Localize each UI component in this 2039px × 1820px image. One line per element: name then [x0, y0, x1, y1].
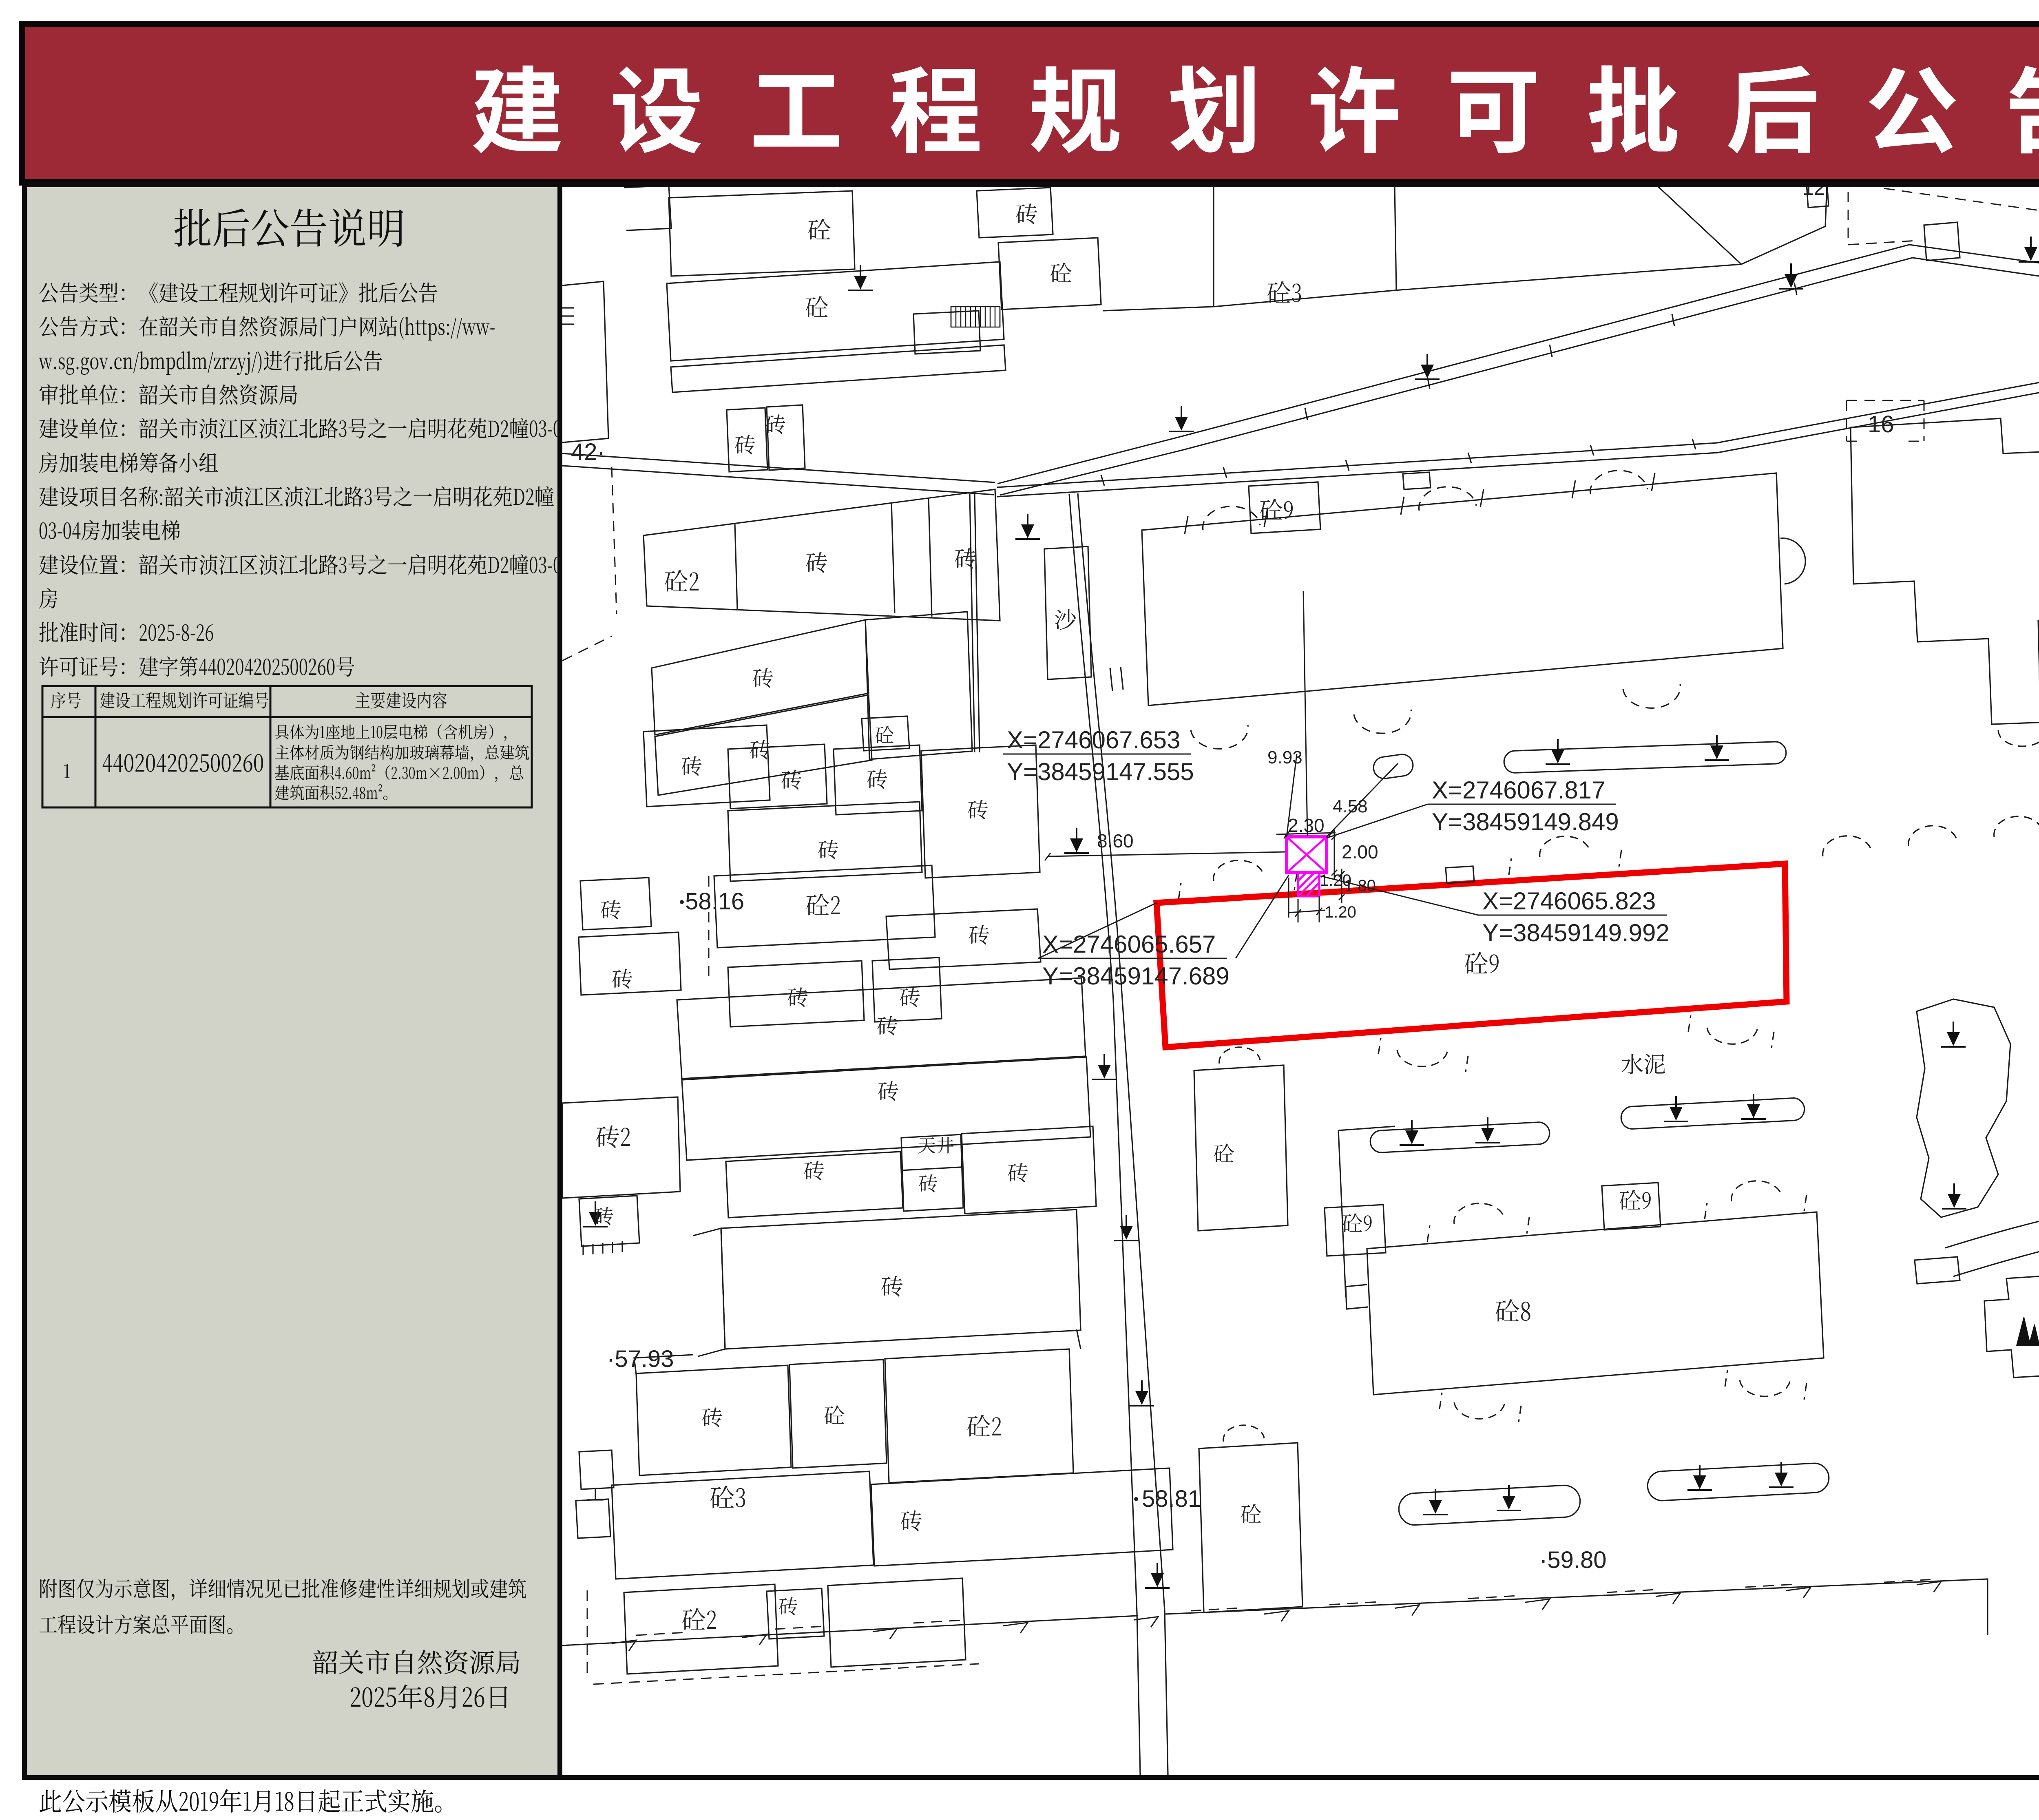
- svg-text:·59.80: ·59.80: [1539, 1547, 1606, 1573]
- svg-text:Y=38459149.849: Y=38459149.849: [1432, 808, 1619, 836]
- svg-text:Y=38459147.555: Y=38459147.555: [1007, 758, 1194, 785]
- svg-text:2.00: 2.00: [1342, 841, 1378, 862]
- svg-text:X=2746065.823: X=2746065.823: [1482, 887, 1656, 915]
- svg-text:58.81: 58.81: [1142, 1486, 1201, 1512]
- svg-text:9.93: 9.93: [1267, 747, 1303, 767]
- svg-text:X=2746067.653: X=2746067.653: [1007, 726, 1180, 754]
- svg-text:16: 16: [1868, 411, 1894, 438]
- svg-text:8.60: 8.60: [1097, 830, 1134, 851]
- svg-text:·57.93: ·57.93: [607, 1346, 674, 1372]
- svg-text:Y=38459149.992: Y=38459149.992: [1482, 919, 1670, 946]
- svg-text:58.16: 58.16: [685, 888, 744, 915]
- svg-text:1.20: 1.20: [1325, 903, 1356, 921]
- svg-text:42·: 42·: [571, 439, 605, 465]
- svg-text:Y=38459147.689: Y=38459147.689: [1042, 962, 1230, 990]
- svg-text:X=2746067.817: X=2746067.817: [1432, 776, 1605, 804]
